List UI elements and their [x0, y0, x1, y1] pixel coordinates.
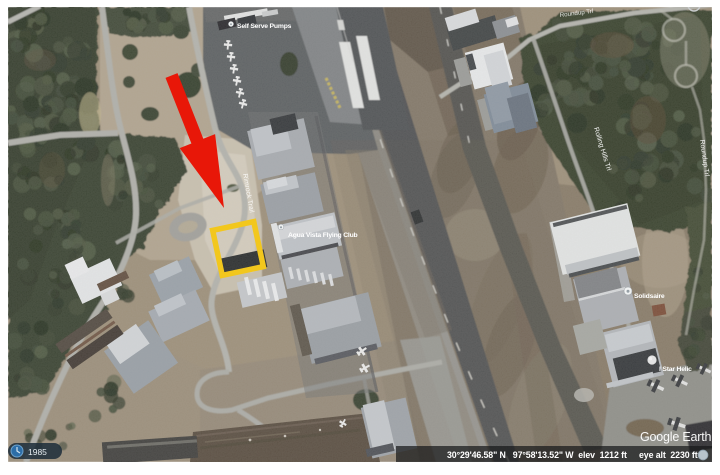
- svg-text:Self Serve Pumps: Self Serve Pumps: [237, 23, 292, 30]
- svg-text:l Star Helic: l Star Helic: [659, 366, 692, 373]
- svg-text:1985: 1985: [28, 447, 47, 457]
- svg-text:Google Earth: Google Earth: [640, 430, 712, 444]
- svg-text:Solidsaire: Solidsaire: [634, 293, 665, 300]
- svg-text:Agua Vista Flying Club: Agua Vista Flying Club: [288, 232, 358, 239]
- svg-text:30°29'46.58" N 97°58'13.52": 30°29'46.58" N 97°58'13.52" W elev 1212 …: [447, 450, 627, 460]
- svg-text:eye alt 2230 ft: eye alt 2230 ft: [639, 450, 698, 460]
